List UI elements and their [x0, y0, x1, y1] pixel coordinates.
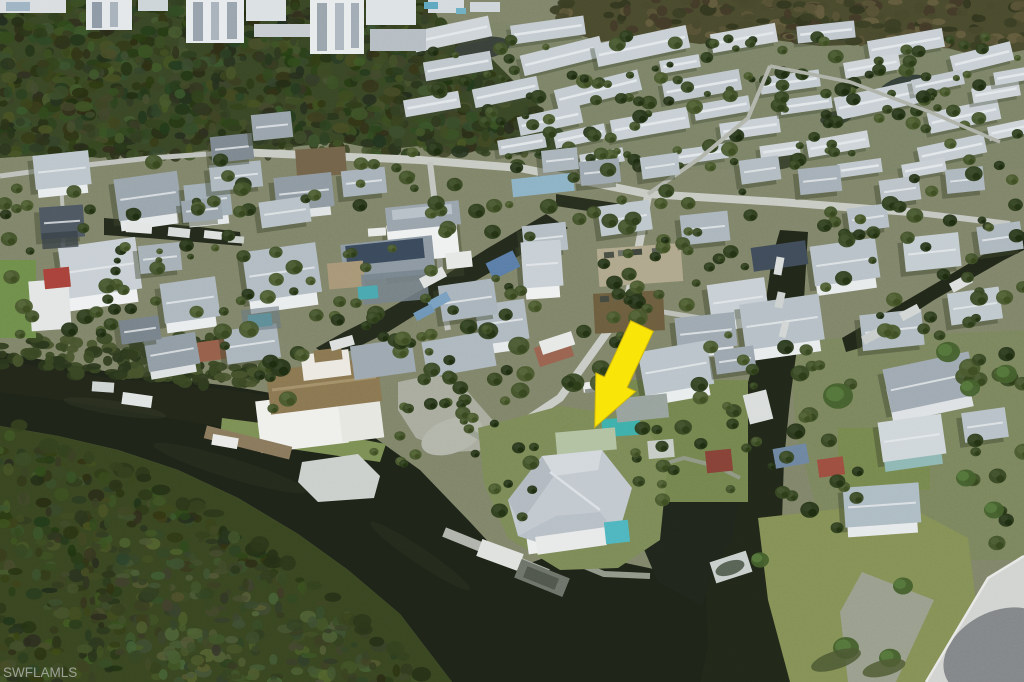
svg-text:SWFLAMLS: SWFLAMLS — [3, 665, 77, 680]
